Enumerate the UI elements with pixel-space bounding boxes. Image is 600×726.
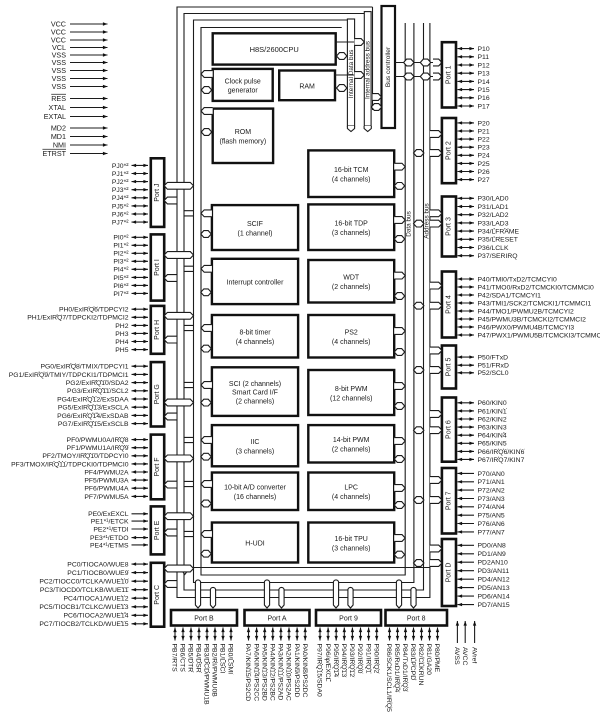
svg-text:(3 channels): (3 channels) xyxy=(332,230,371,237)
svg-text:AVref: AVref xyxy=(470,647,477,663)
svg-text:PJ6*²: PJ6*² xyxy=(112,211,129,218)
svg-text:P63/KIN3: P63/KIN3 xyxy=(478,425,507,432)
svg-text:PI5*²: PI5*² xyxy=(113,275,129,282)
svg-text:P95/IRQ14: P95/IRQ14 xyxy=(332,644,339,678)
svg-text:Port G: Port G xyxy=(154,384,161,404)
svg-text:PA6/KIN14/PS2CC: PA6/KIN14/PS2CC xyxy=(252,644,259,702)
svg-text:PJ5*²: PJ5*² xyxy=(112,203,129,210)
svg-text:Data bus: Data bus xyxy=(405,211,412,237)
svg-text:PB5/DTR: PB5/DTR xyxy=(187,644,194,673)
svg-text:PG7/ExIRQ15/ExSCLB: PG7/ExIRQ15/ExSCLB xyxy=(58,421,129,428)
svg-text:PS2: PS2 xyxy=(345,330,358,337)
svg-text:(3 channels): (3 channels) xyxy=(332,545,371,552)
svg-text:(16 channels): (16 channels) xyxy=(234,494,276,501)
svg-text:SCI (2 channels): SCI (2 channels) xyxy=(229,381,281,388)
svg-text:P50/FTxD: P50/FTxD xyxy=(478,355,509,362)
svg-text:PG3/ExIRQ11/SCL2: PG3/ExIRQ11/SCL2 xyxy=(67,388,129,395)
svg-text:P42/SDA1/TCMCYI1: P42/SDA1/TCMCYI1 xyxy=(478,292,542,299)
svg-text:PC2/TIOCC0/TCLKA/WUE10: PC2/TIOCC0/TCLKA/WUE10 xyxy=(39,579,128,586)
svg-text:PD5/AN13: PD5/AN13 xyxy=(478,585,510,592)
svg-text:P36/LCLK: P36/LCLK xyxy=(478,245,509,252)
svg-text:P13: P13 xyxy=(478,71,490,78)
svg-text:(2 channels): (2 channels) xyxy=(332,447,371,454)
svg-text:(3 channels): (3 channels) xyxy=(236,449,275,456)
svg-text:P52/SCL0: P52/SCL0 xyxy=(478,370,509,377)
svg-text:PJ3*²: PJ3*² xyxy=(112,187,129,194)
svg-text:PG0/ExIRQ8/TMIX/TDPCYI1: PG0/ExIRQ8/TMIX/TDPCYI1 xyxy=(40,364,128,371)
svg-text:PF2/TMOY/IRQ10/TDPCYI0: PF2/TMOY/IRQ10/TDPCYI0 xyxy=(42,453,128,460)
svg-text:Port A: Port A xyxy=(267,615,286,622)
svg-text:Port D: Port D xyxy=(446,563,453,583)
svg-text:PH4: PH4 xyxy=(115,339,128,346)
svg-text:P81/GA20: P81/GA20 xyxy=(425,644,432,676)
svg-text:PE3*¹/ETDO: PE3*¹/ETDO xyxy=(90,535,129,542)
svg-text:P34/LFRAME: P34/LFRAME xyxy=(478,229,520,236)
svg-text:Port C: Port C xyxy=(154,585,161,605)
svg-text:P31/LAD1: P31/LAD1 xyxy=(478,204,509,211)
svg-text:WDT: WDT xyxy=(343,275,360,282)
svg-text:PC3/TIOCD0/TCLKB/WUE11: PC3/TIOCD0/TCLKB/WUE11 xyxy=(40,587,129,594)
svg-text:P83/LPCPD: P83/LPCPD xyxy=(409,644,416,681)
svg-text:H8S/2600CPU: H8S/2600CPU xyxy=(250,45,299,54)
svg-text:P61/KIN1: P61/KIN1 xyxy=(478,408,507,415)
svg-text:P22: P22 xyxy=(478,137,490,144)
svg-text:Port I: Port I xyxy=(154,259,161,276)
svg-text:Port 3: Port 3 xyxy=(446,217,453,236)
svg-text:P21: P21 xyxy=(478,128,490,135)
svg-text:P74/AN4: P74/AN4 xyxy=(478,504,505,511)
svg-text:PC7/TIOCB2/TCLKD/WUE15: PC7/TIOCB2/TCLKD/WUE15 xyxy=(39,621,128,628)
svg-text:AVSS: AVSS xyxy=(453,647,460,665)
svg-text:P44/TMO1/PWMU2B/TCMCYI2: P44/TMO1/PWMU2B/TCMCYI2 xyxy=(478,308,575,315)
svg-text:LPC: LPC xyxy=(344,485,358,492)
svg-text:IIC: IIC xyxy=(251,439,260,446)
svg-text:PF7/PWMU5A: PF7/PWMU5A xyxy=(84,494,129,501)
svg-text:P82/CLKRUN: P82/CLKRUN xyxy=(417,644,424,686)
svg-text:P94/IRQ13: P94/IRQ13 xyxy=(340,644,347,678)
svg-text:PB4/DSR: PB4/DSR xyxy=(195,644,202,673)
svg-text:PG4/ExIRQ12/ExSDAA: PG4/ExIRQ12/ExSDAA xyxy=(57,396,129,403)
svg-text:P90/IRQ2: P90/IRQ2 xyxy=(372,644,379,674)
svg-text:Clock pulse: Clock pulse xyxy=(225,78,261,85)
svg-text:Address bus: Address bus xyxy=(424,203,431,239)
svg-text:(2 channels): (2 channels) xyxy=(236,399,275,406)
svg-text:Port J: Port J xyxy=(154,183,161,201)
svg-text:P76/AN6: P76/AN6 xyxy=(478,521,505,528)
svg-text:PC5/TIOCB1/TCLKC/WUE13: PC5/TIOCB1/TCLKC/WUE13 xyxy=(39,604,128,611)
svg-text:PB0/LSMI: PB0/LSMI xyxy=(227,644,234,675)
svg-text:Port 4: Port 4 xyxy=(446,295,453,314)
svg-text:(4 channels): (4 channels) xyxy=(332,339,371,346)
svg-text:P20: P20 xyxy=(478,120,490,127)
svg-text:PA5/KIN13/PS2BD: PA5/KIN13/PS2BD xyxy=(260,644,267,701)
svg-text:P40/TMI0/TxD2/TCMCYI0: P40/TMI0/TxD2/TCMCYI0 xyxy=(478,276,558,283)
svg-text:PB6/CTS: PB6/CTS xyxy=(179,644,186,673)
svg-text:8-bit timer: 8-bit timer xyxy=(239,330,271,337)
svg-text:P26: P26 xyxy=(478,169,490,176)
svg-text:H-UDI: H-UDI xyxy=(245,541,264,548)
svg-text:PI2*²: PI2*² xyxy=(113,251,129,258)
svg-text:P30/LAD0: P30/LAD0 xyxy=(478,196,509,203)
svg-text:PC0/TIOCA0/WUE8: PC0/TIOCA0/WUE8 xyxy=(67,562,128,569)
svg-text:P45/PWMU3B/TCMCKI2/TCMMCI2: P45/PWMU3B/TCMCKI2/TCMMCI2 xyxy=(478,316,587,323)
svg-text:(12 channels): (12 channels) xyxy=(330,395,372,402)
svg-text:P16: P16 xyxy=(478,95,490,102)
svg-text:P41/TMO0/RxD2/TCMCKI0/TCMMCI0: P41/TMO0/RxD2/TCMCKI0/TCMMCI0 xyxy=(478,284,595,291)
svg-text:P14: P14 xyxy=(478,79,490,86)
svg-text:P92/IRQ0: P92/IRQ0 xyxy=(356,644,363,674)
svg-text:PF5/PWMU3A: PF5/PWMU3A xyxy=(84,478,129,485)
svg-text:EXTAL: EXTAL xyxy=(44,112,66,121)
svg-text:ETRST: ETRST xyxy=(42,149,66,158)
svg-text:P47/PWX1/PWMU5B/TCMCKI3/TCMMCI: P47/PWX1/PWMU5B/TCMCKI3/TCMMCI3 xyxy=(478,332,600,339)
svg-text:P97/IRQ15/SDA0: P97/IRQ15/SDA0 xyxy=(316,644,323,698)
svg-text:PA1/KIN9/PS2DD: PA1/KIN9/PS2DD xyxy=(293,644,300,698)
svg-text:(4 channels): (4 channels) xyxy=(332,494,371,501)
svg-text:PD7/AN15: PD7/AN15 xyxy=(478,602,510,609)
svg-text:(1 channel): (1 channel) xyxy=(237,230,272,237)
svg-text:16-bit TPU: 16-bit TPU xyxy=(335,536,368,543)
svg-text:PA4/KIN12/PS2BC: PA4/KIN12/PS2BC xyxy=(269,644,276,701)
svg-text:(flash memory): (flash memory) xyxy=(220,139,267,146)
svg-text:P85/RxD1/IRQ4: P85/RxD1/IRQ4 xyxy=(393,644,400,693)
svg-text:P73/AN3: P73/AN3 xyxy=(478,496,505,503)
svg-text:Interrupt controller: Interrupt controller xyxy=(227,280,284,287)
svg-text:AVCC: AVCC xyxy=(461,647,468,665)
svg-text:PA2/KIN10/PS2AC: PA2/KIN10/PS2AC xyxy=(285,644,292,701)
svg-text:P51/FRxD: P51/FRxD xyxy=(478,363,509,370)
svg-text:(2 channels): (2 channels) xyxy=(332,284,371,291)
svg-text:P33/LAD3: P33/LAD3 xyxy=(478,220,509,227)
svg-text:PE4*¹/ETMS: PE4*¹/ETMS xyxy=(90,542,129,549)
svg-text:PJ1*²: PJ1*² xyxy=(112,171,129,178)
svg-text:PG1/ExIRQ9/TMIY/TDPCKI1/TDPMCI: PG1/ExIRQ9/TMIY/TDPCKI1/TDPMCI1 xyxy=(9,372,129,379)
svg-text:Bus controller: Bus controller xyxy=(385,46,392,87)
svg-text:P75/AN5: P75/AN5 xyxy=(478,513,505,520)
svg-text:PJ0*²: PJ0*² xyxy=(112,163,129,170)
svg-text:PH5: PH5 xyxy=(115,347,128,354)
svg-text:PA7/KIN15/PS2CD: PA7/KIN15/PS2CD xyxy=(244,644,251,702)
svg-text:PD0/AN8: PD0/AN8 xyxy=(478,543,507,550)
svg-text:P72/AN2: P72/AN2 xyxy=(478,488,505,495)
svg-text:PI0*²: PI0*² xyxy=(113,235,129,242)
svg-text:ROM: ROM xyxy=(235,129,252,136)
svg-text:Port F: Port F xyxy=(154,457,161,476)
svg-text:PE1*¹/ETCK: PE1*¹/ETCK xyxy=(91,519,129,526)
svg-text:P32/LAD2: P32/LAD2 xyxy=(478,212,509,219)
svg-text:P86/SCK1/SCL1/IRQ5: P86/SCK1/SCL1/IRQ5 xyxy=(385,644,392,713)
svg-text:P43/TMI1/SCK2/TCMCKI1/TCMMCI1: P43/TMI1/SCK2/TCMCKI1/TCMMCI1 xyxy=(478,300,592,307)
svg-text:RAM: RAM xyxy=(299,84,315,91)
svg-text:P23: P23 xyxy=(478,145,490,152)
svg-text:P24: P24 xyxy=(478,153,490,160)
svg-text:P12: P12 xyxy=(478,62,490,69)
svg-text:PA3/KIN11/PS2AD: PA3/KIN11/PS2AD xyxy=(277,644,284,701)
svg-text:P11: P11 xyxy=(478,54,490,61)
svg-text:P62/KIN2: P62/KIN2 xyxy=(478,416,507,423)
svg-text:PB7/RTS: PB7/RTS xyxy=(171,644,178,673)
svg-text:(4 channels): (4 channels) xyxy=(332,177,371,184)
svg-text:P77/AN7: P77/AN7 xyxy=(478,529,505,536)
svg-text:16-bit TDP: 16-bit TDP xyxy=(335,221,369,228)
svg-text:10-bit A/D converter: 10-bit A/D converter xyxy=(224,485,287,492)
svg-text:Port 6: Port 6 xyxy=(446,420,453,439)
svg-text:PD2AN10: PD2AN10 xyxy=(478,560,508,567)
svg-text:P65/KIN5: P65/KIN5 xyxy=(478,441,507,448)
svg-text:PG2/ExIRQ10/SDA2: PG2/ExIRQ10/SDA2 xyxy=(66,380,129,387)
svg-text:PB2/RI/PWMU0B: PB2/RI/PWMU0B xyxy=(211,644,218,698)
svg-text:PF3/TMOX/IRQ11/TDPCKI0/TDPMCI0: PF3/TMOX/IRQ11/TDPCKI0/TDPMCI0 xyxy=(11,461,129,468)
svg-text:Port 1: Port 1 xyxy=(446,65,453,84)
svg-text:P27: P27 xyxy=(478,177,490,184)
svg-text:XTAL: XTAL xyxy=(49,103,66,112)
svg-text:PB1/LSCI: PB1/LSCI xyxy=(219,644,226,674)
svg-text:P66/IRQ6/KIN6: P66/IRQ6/KIN6 xyxy=(478,449,525,456)
svg-text:PI6*²: PI6*² xyxy=(113,283,129,290)
svg-text:8-bit PWM: 8-bit PWM xyxy=(335,386,368,393)
svg-text:Port 8: Port 8 xyxy=(407,615,426,622)
svg-text:PE2*¹/ETDI: PE2*¹/ETDI xyxy=(93,526,128,533)
svg-text:PI1*²: PI1*² xyxy=(113,243,129,250)
svg-text:PG5/ExIRQ13/ExSCLA: PG5/ExIRQ13/ExSCLA xyxy=(58,405,129,412)
svg-text:PI4*²: PI4*² xyxy=(113,267,129,274)
svg-text:Smart Card I/F: Smart Card I/F xyxy=(232,390,278,397)
svg-text:PI3*²: PI3*² xyxy=(113,259,129,266)
svg-text:Port 7: Port 7 xyxy=(446,491,453,510)
svg-text:P91/IRQ1: P91/IRQ1 xyxy=(364,644,371,674)
svg-text:P37/SERIRQ: P37/SERIRQ xyxy=(478,253,518,260)
svg-text:P64/KIN4: P64/KIN4 xyxy=(478,433,507,440)
svg-text:Port B: Port B xyxy=(194,615,214,622)
svg-text:PD4/AN12: PD4/AN12 xyxy=(478,577,510,584)
svg-text:PD3/AN11: PD3/AN11 xyxy=(478,568,510,575)
svg-text:P80/PME: P80/PME xyxy=(433,644,440,673)
svg-text:PF4/PWMU2A: PF4/PWMU2A xyxy=(84,469,129,476)
svg-text:P67/IRQ7/KIN7: P67/IRQ7/KIN7 xyxy=(478,457,525,464)
svg-text:Port H: Port H xyxy=(154,320,161,340)
svg-text:(4 channels): (4 channels) xyxy=(236,339,275,346)
svg-text:PC6/TIOCA2/WUE14: PC6/TIOCA2/WUE14 xyxy=(64,613,129,620)
svg-text:PH3: PH3 xyxy=(115,331,128,338)
svg-text:Port 5: Port 5 xyxy=(446,358,453,377)
svg-text:Port 9: Port 9 xyxy=(339,615,358,622)
svg-text:SCIF: SCIF xyxy=(247,221,263,228)
svg-text:PH1/ExIRQ7/TDPCKI2/TDPMCI2: PH1/ExIRQ7/TDPCKI2/TDPMCI2 xyxy=(27,315,128,322)
svg-text:P10: P10 xyxy=(478,46,490,53)
svg-text:PE0/ExEXCL: PE0/ExEXCL xyxy=(88,511,129,518)
svg-text:VSS: VSS xyxy=(52,82,67,91)
svg-text:P71/AN1: P71/AN1 xyxy=(478,479,505,486)
svg-text:Internal address bus: Internal address bus xyxy=(364,41,371,99)
svg-text:P35/LRESET: P35/LRESET xyxy=(478,237,518,244)
svg-text:PF0/PWMU0A/IRQ8: PF0/PWMU0A/IRQ8 xyxy=(67,437,129,444)
svg-text:PJ4*²: PJ4*² xyxy=(112,195,129,202)
svg-text:PH0/ExIRQ6/TDPCYI2: PH0/ExIRQ6/TDPCYI2 xyxy=(59,307,129,314)
svg-text:P84/TxD1/IRQ3: P84/TxD1/IRQ3 xyxy=(401,644,408,692)
svg-text:PJ2*²: PJ2*² xyxy=(112,179,129,186)
svg-text:Port 2: Port 2 xyxy=(446,141,453,160)
svg-text:P17: P17 xyxy=(478,103,490,110)
svg-text:Internal Data bus: Internal Data bus xyxy=(348,50,355,99)
svg-text:generator: generator xyxy=(228,88,259,95)
svg-text:PB3/DCD/PWMU1B: PB3/DCD/PWMU1B xyxy=(203,644,210,706)
svg-text:PJ7*²: PJ7*² xyxy=(112,220,129,227)
svg-text:PI7*²: PI7*² xyxy=(113,291,129,298)
svg-text:Port E: Port E xyxy=(154,520,161,540)
svg-text:RES: RES xyxy=(51,94,66,103)
svg-text:P60/KIN0: P60/KIN0 xyxy=(478,400,507,407)
svg-text:14-bit PWM: 14-bit PWM xyxy=(333,437,370,444)
svg-text:PC4/TIOCA1/WUE12: PC4/TIOCA1/WUE12 xyxy=(64,596,129,603)
svg-text:PD6/AN14: PD6/AN14 xyxy=(478,594,510,601)
svg-text:P15: P15 xyxy=(478,87,490,94)
svg-text:P70/AN0: P70/AN0 xyxy=(478,471,505,478)
svg-text:PF1/PWMU1A/IRQ9: PF1/PWMU1A/IRQ9 xyxy=(67,445,129,452)
svg-text:PG6/ExIRQ14/ExSDAB: PG6/ExIRQ14/ExSDAB xyxy=(57,413,129,420)
svg-text:P25: P25 xyxy=(478,161,490,168)
svg-text:PC1/TIOCB0/WUE9: PC1/TIOCB0/WUE9 xyxy=(67,570,128,577)
svg-text:PF6/PWMU4A: PF6/PWMU4A xyxy=(84,486,129,493)
svg-text:P46/PWX0/PWMU4B/TCMCYI3: P46/PWX0/PWMU4B/TCMCYI3 xyxy=(478,324,575,331)
svg-text:P93/IRQ12: P93/IRQ12 xyxy=(348,644,355,678)
svg-text:16-bit TCM: 16-bit TCM xyxy=(334,167,369,174)
svg-text:P96/φ/EXCL: P96/φ/EXCL xyxy=(324,644,331,682)
svg-text:PH2: PH2 xyxy=(115,323,128,330)
svg-text:PD1/AN9: PD1/AN9 xyxy=(478,551,507,558)
svg-text:PA0/KIN8/PS2DC: PA0/KIN8/PS2DC xyxy=(301,644,308,698)
